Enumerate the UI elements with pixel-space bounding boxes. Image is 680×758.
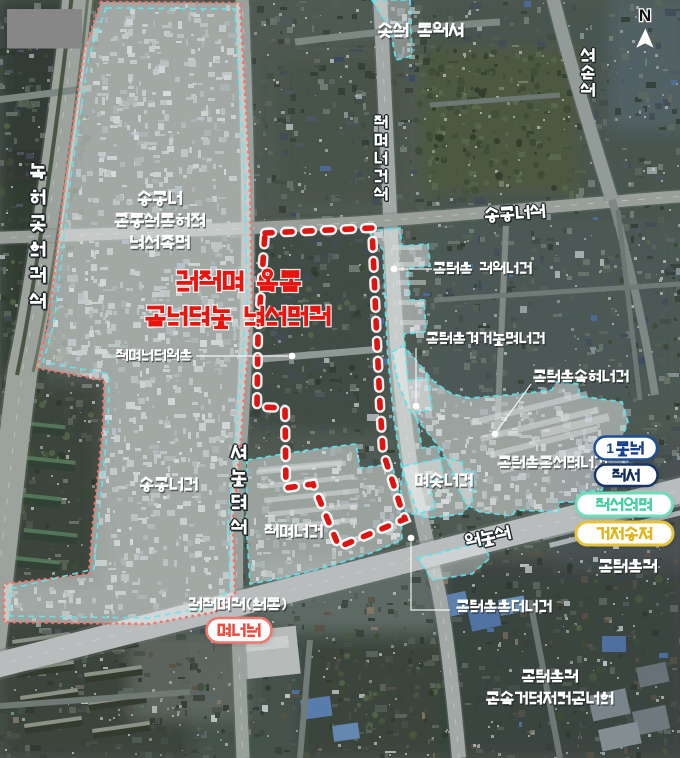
svg-text:N: N (639, 6, 651, 25)
svg-text:1: 1 (606, 440, 614, 456)
